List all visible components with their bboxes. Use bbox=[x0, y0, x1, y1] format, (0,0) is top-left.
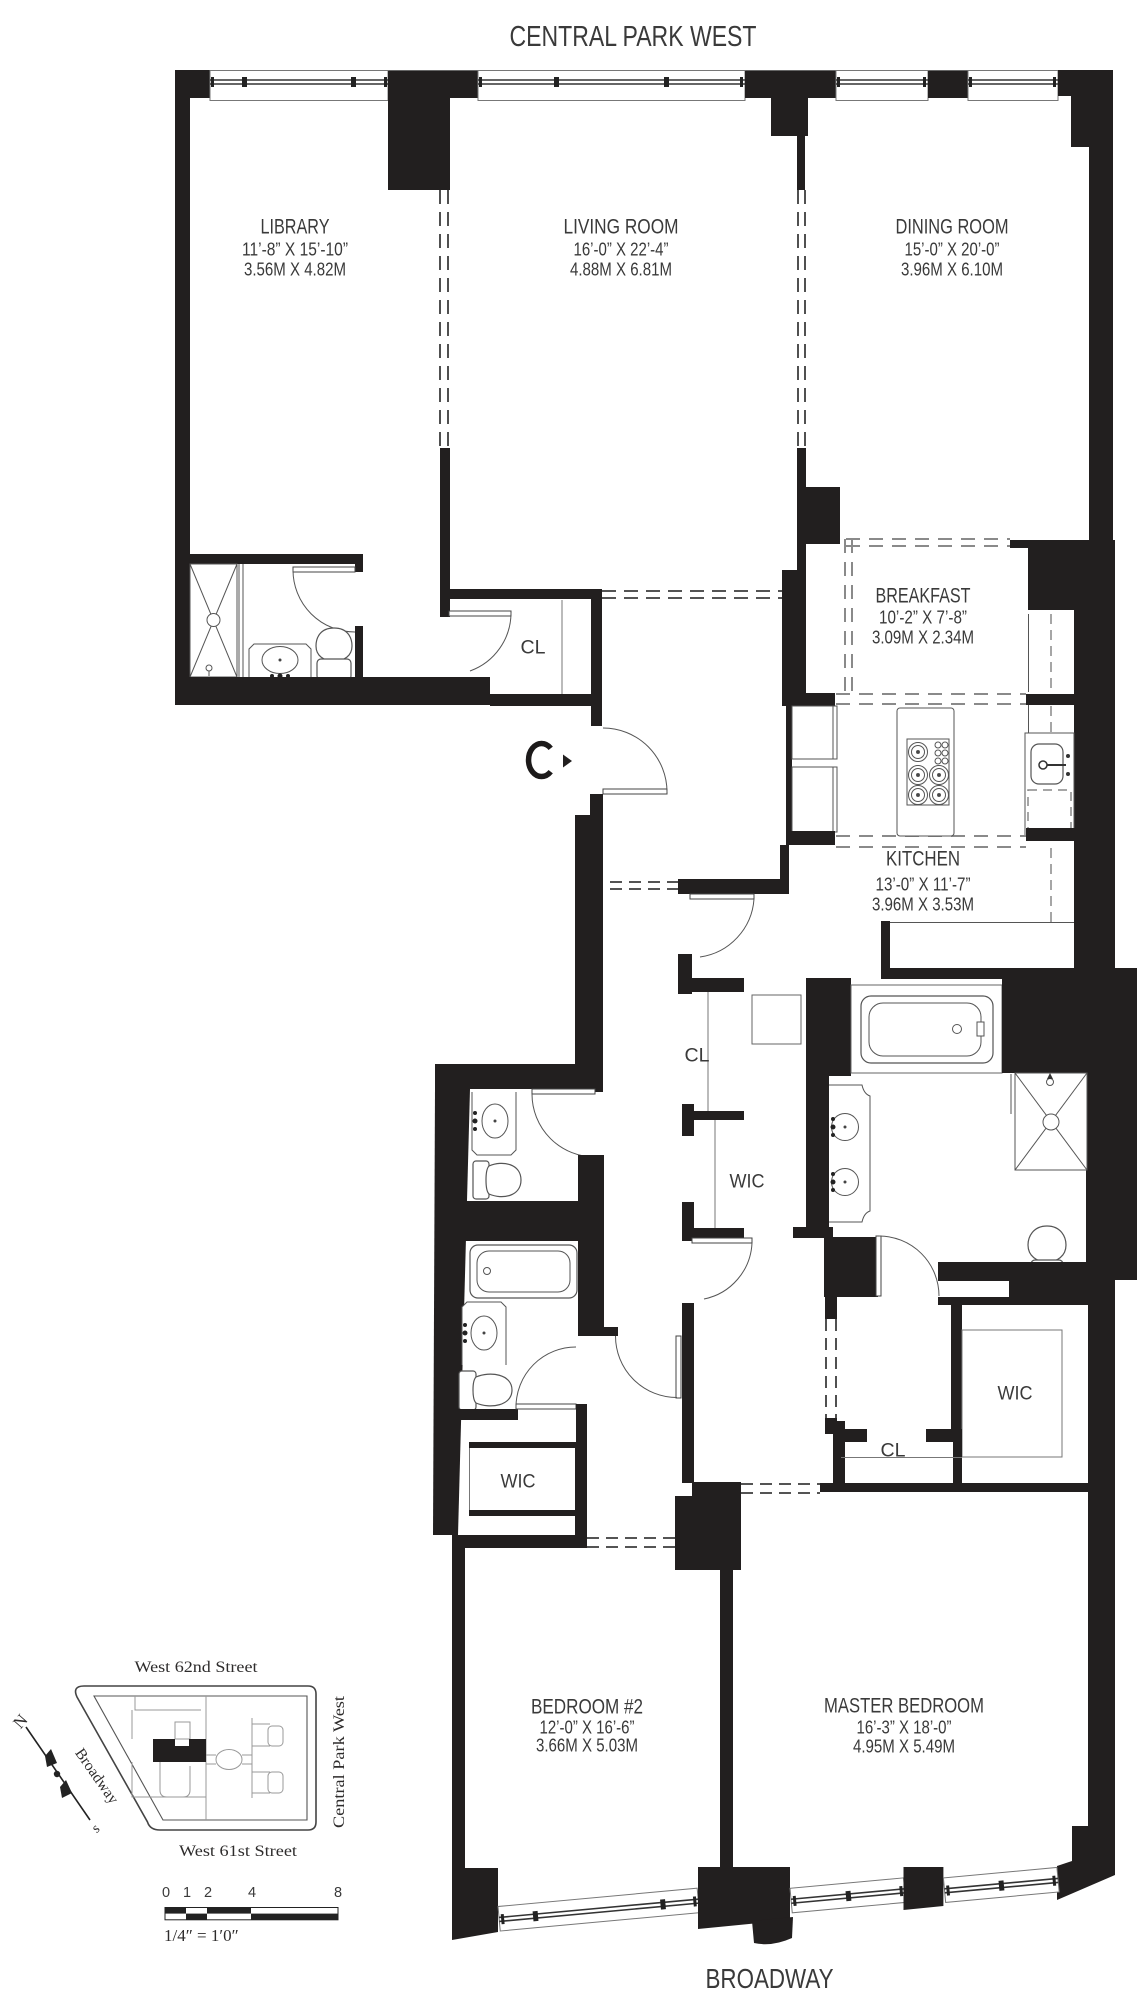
svg-text:BROADWAY: BROADWAY bbox=[706, 1963, 834, 1994]
svg-text:KITCHEN: KITCHEN bbox=[886, 848, 960, 871]
svg-text:CL: CL bbox=[881, 1441, 906, 1462]
svg-text:11’-8” X 15’-10”: 11’-8” X 15’-10” bbox=[242, 239, 348, 260]
svg-text:3.09M X 2.34M: 3.09M X 2.34M bbox=[872, 627, 974, 648]
svg-text:BEDROOM #2: BEDROOM #2 bbox=[531, 1696, 643, 1719]
svg-text:MASTER BEDROOM: MASTER BEDROOM bbox=[824, 1695, 984, 1718]
svg-text:West 62nd Street: West 62nd Street bbox=[135, 1659, 259, 1676]
svg-text:0: 0 bbox=[162, 1885, 170, 1901]
svg-text:2: 2 bbox=[204, 1885, 212, 1901]
svg-text:LIBRARY: LIBRARY bbox=[261, 216, 330, 239]
svg-text:LIVING ROOM: LIVING ROOM bbox=[564, 216, 679, 239]
svg-text:4.88M X 6.81M: 4.88M X 6.81M bbox=[570, 259, 672, 280]
svg-text:Central Park West: Central Park West bbox=[331, 1695, 348, 1828]
svg-text:WIC: WIC bbox=[998, 1384, 1033, 1405]
svg-text:CL: CL bbox=[521, 638, 546, 659]
svg-text:4.95M X 5.49M: 4.95M X 5.49M bbox=[853, 1736, 955, 1757]
svg-text:3.56M X 4.82M: 3.56M X 4.82M bbox=[244, 259, 346, 280]
svg-text:3.96M X 3.53M: 3.96M X 3.53M bbox=[872, 894, 974, 915]
svg-text:16’-0” X 22’-4”: 16’-0” X 22’-4” bbox=[574, 239, 669, 260]
svg-text:13’-0” X 11’-7”: 13’-0” X 11’-7” bbox=[876, 874, 971, 895]
svg-text:15’-0” X 20’-0”: 15’-0” X 20’-0” bbox=[905, 239, 1000, 260]
svg-text:8: 8 bbox=[334, 1885, 342, 1901]
svg-text:3.66M X 5.03M: 3.66M X 5.03M bbox=[536, 1735, 638, 1756]
svg-text:16’-3” X 18’-0”: 16’-3” X 18’-0” bbox=[857, 1717, 952, 1738]
svg-text:WIC: WIC bbox=[730, 1172, 765, 1193]
svg-text:3.96M X 6.10M: 3.96M X 6.10M bbox=[901, 259, 1003, 280]
svg-text:10’-2” X 7’-8”: 10’-2” X 7’-8” bbox=[879, 607, 967, 628]
svg-text:4: 4 bbox=[248, 1885, 256, 1901]
svg-text:BREAKFAST: BREAKFAST bbox=[876, 585, 971, 608]
svg-text:WIC: WIC bbox=[501, 1472, 536, 1493]
svg-text:1: 1 bbox=[183, 1885, 191, 1901]
svg-text:DINING ROOM: DINING ROOM bbox=[896, 216, 1009, 239]
svg-text:CENTRAL PARK WEST: CENTRAL PARK WEST bbox=[510, 21, 757, 53]
svg-text:CL: CL bbox=[685, 1046, 710, 1067]
svg-text:1/4″ = 1′0″: 1/4″ = 1′0″ bbox=[164, 1926, 239, 1945]
svg-text:West 61st Street: West 61st Street bbox=[179, 1843, 298, 1860]
